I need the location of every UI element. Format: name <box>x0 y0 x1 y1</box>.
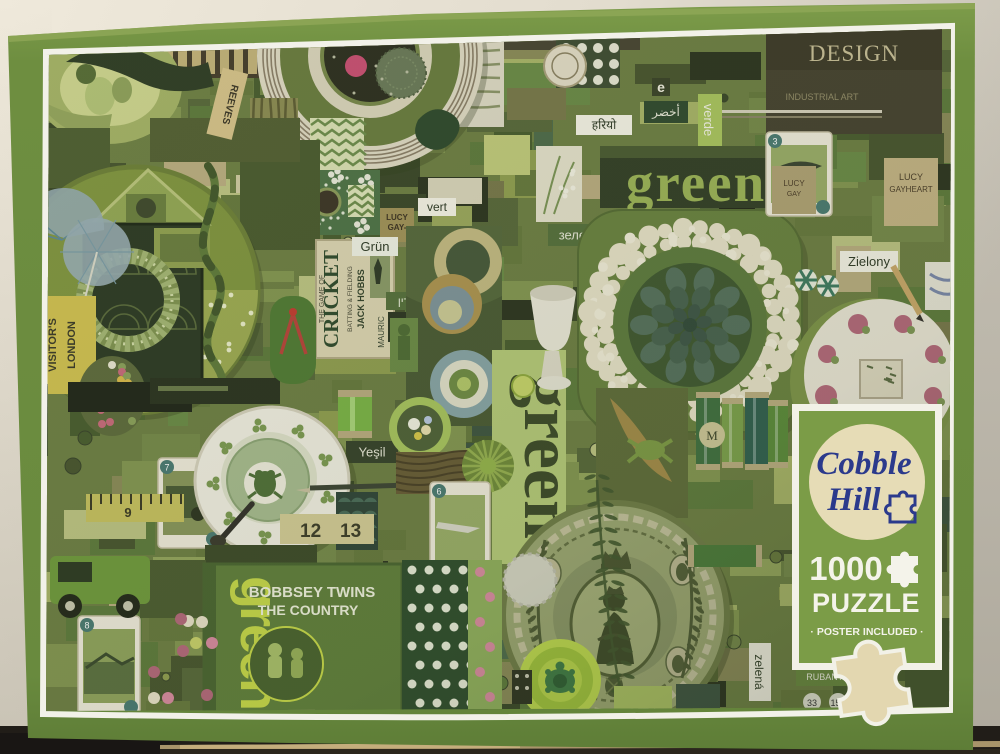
svg-text:Hill: Hill <box>826 482 881 518</box>
svg-text:PUZZLE: PUZZLE <box>812 588 920 618</box>
svg-text:· POSTER INCLUDED ·: · POSTER INCLUDED · <box>810 626 923 638</box>
svg-text:1000: 1000 <box>809 550 882 587</box>
svg-text:Cobble: Cobble <box>816 446 911 482</box>
